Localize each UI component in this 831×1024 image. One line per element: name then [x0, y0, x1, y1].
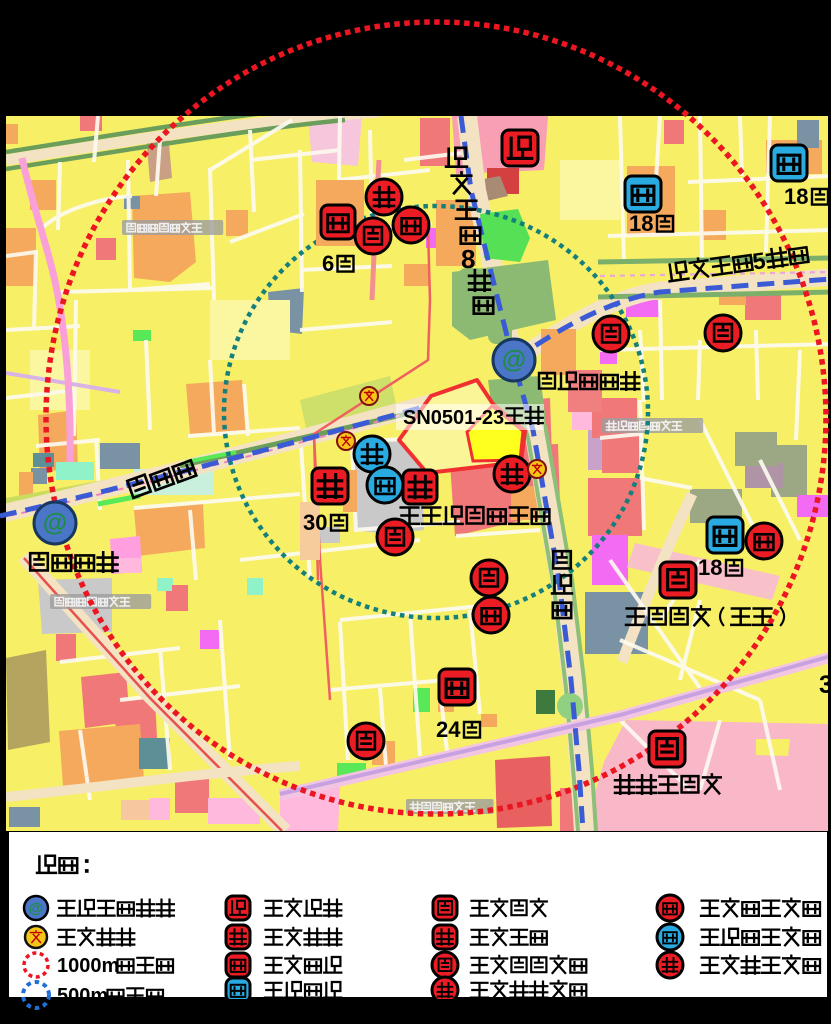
- svg-text:@: @: [43, 509, 67, 537]
- svg-text:18: 18: [629, 211, 653, 236]
- svg-text:3: 3: [819, 671, 831, 699]
- svg-text:6: 6: [322, 251, 334, 276]
- svg-text:24: 24: [436, 717, 461, 742]
- svg-text:8: 8: [461, 244, 475, 274]
- svg-text:30: 30: [303, 510, 327, 535]
- svg-text:1000m: 1000m: [57, 955, 119, 977]
- svg-text:@: @: [29, 900, 44, 917]
- svg-text:18: 18: [784, 184, 808, 209]
- svg-text:18: 18: [698, 555, 722, 580]
- svg-text:SN0501-23: SN0501-23: [403, 407, 504, 429]
- svg-text:@: @: [502, 346, 526, 374]
